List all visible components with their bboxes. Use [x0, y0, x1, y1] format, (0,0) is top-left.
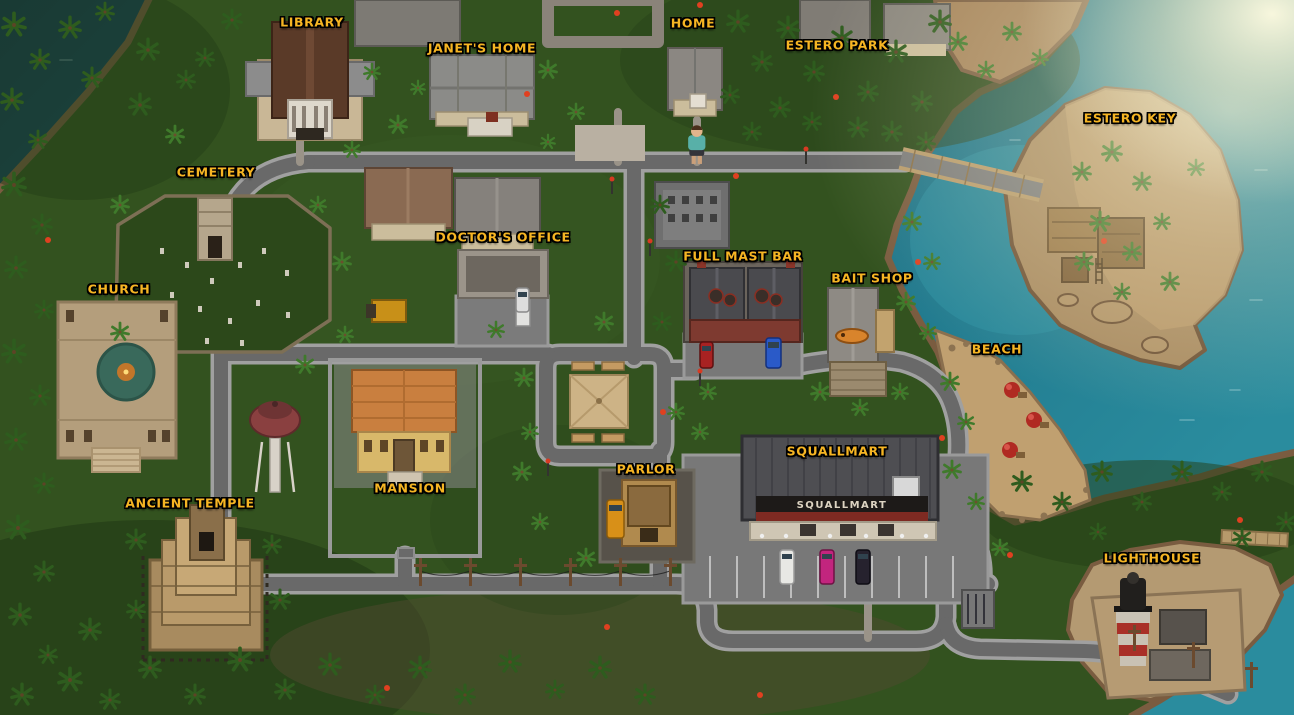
- map-label-squallmart[interactable]: SQUALLMART: [787, 444, 888, 459]
- map-label-parlor[interactable]: PARLOR: [617, 462, 676, 477]
- map-label-lighthouse[interactable]: LIGHTHOUSE: [1104, 551, 1201, 566]
- doctors-office-parking: [456, 296, 548, 346]
- full-mast-bar-building[interactable]: [684, 258, 802, 342]
- squallmart-storefront-sign: SQUALLMART: [797, 500, 888, 511]
- church-building[interactable]: [58, 302, 176, 472]
- map-label-beach[interactable]: BEACH: [972, 342, 1022, 357]
- pier: [1221, 530, 1288, 546]
- map-label-estero-key[interactable]: ESTERO KEY: [1084, 111, 1177, 126]
- map-label-doctors-office[interactable]: DOCTOR'S OFFICE: [435, 230, 570, 245]
- map-artwork: SQUALLMART: [0, 0, 1294, 715]
- home-building[interactable]: [668, 48, 722, 116]
- map-label-estero-park[interactable]: ESTERO PARK: [786, 38, 889, 53]
- map-label-home[interactable]: HOME: [671, 16, 715, 31]
- map-label-full-mast-bar[interactable]: FULL MAST BAR: [683, 249, 803, 264]
- map-label-library[interactable]: LIBRARY: [280, 15, 344, 30]
- town-map: SQUALLMART: [0, 0, 1294, 715]
- parlor-building[interactable]: [622, 480, 676, 546]
- gate: [962, 590, 994, 628]
- map-label-janets-home[interactable]: JANET'S HOME: [428, 41, 536, 56]
- bulldozer: [366, 300, 406, 322]
- map-label-church[interactable]: CHURCH: [88, 282, 151, 297]
- map-label-cemetery[interactable]: CEMETERY: [177, 165, 256, 180]
- map-label-bait-shop[interactable]: BAIT SHOP: [831, 271, 912, 286]
- map-label-mansion[interactable]: MANSION: [374, 481, 446, 496]
- map-label-ancient-temple[interactable]: ANCIENT TEMPLE: [125, 496, 254, 511]
- janets-home-building[interactable]: [430, 55, 534, 136]
- apartment-building: [655, 182, 729, 248]
